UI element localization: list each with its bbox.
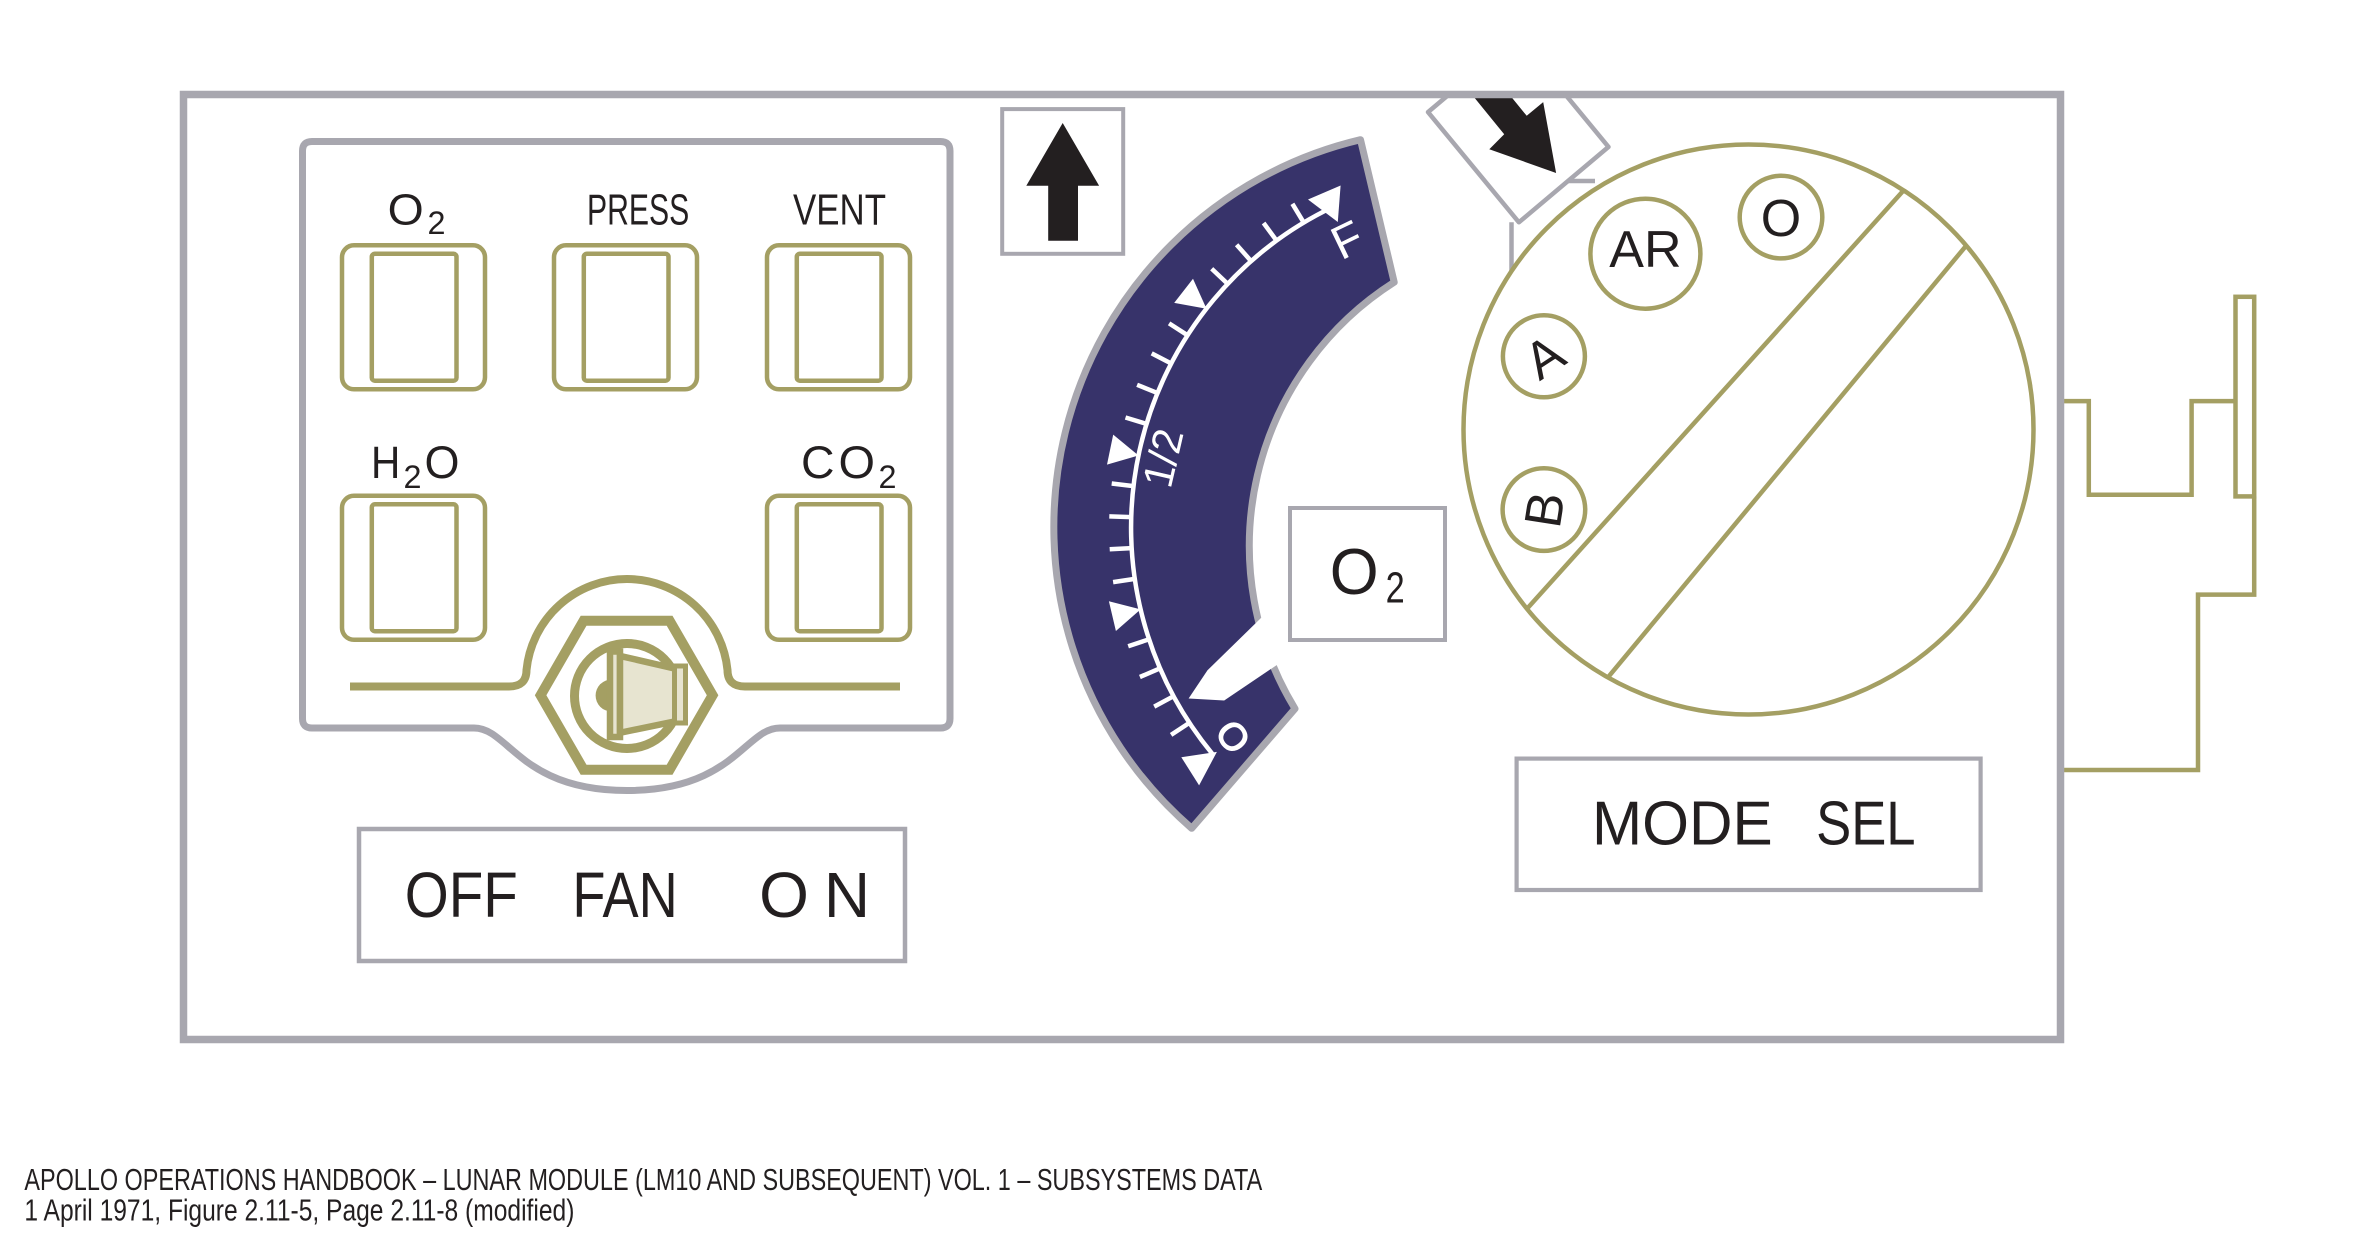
svg-text:2: 2 [1386,564,1405,613]
svg-text:N: N [824,859,870,931]
svg-text:C: C [801,437,835,488]
svg-text:MODE: MODE [1592,789,1773,858]
svg-text:FAN: FAN [572,859,677,931]
svg-text:O: O [1761,190,1801,248]
svg-text:2: 2 [404,459,422,495]
svg-text:PRESS: PRESS [587,186,689,235]
svg-text:O: O [1330,535,1379,608]
svg-text:OFF: OFF [405,859,518,931]
svg-text:O: O [839,437,876,488]
svg-text:H: H [371,437,400,488]
svg-text:O: O [759,859,809,931]
svg-text:AR: AR [1609,221,1681,279]
svg-text:O: O [425,437,460,488]
svg-text:SEL: SEL [1816,789,1916,858]
svg-text:2: 2 [428,205,446,241]
svg-text:1 April 1971, Figure 2.11-5, P: 1 April 1971, Figure 2.11-5, Page 2.11-8… [24,1193,574,1228]
svg-text:O: O [388,186,424,235]
svg-text:VENT: VENT [793,186,886,235]
svg-text:2: 2 [879,459,897,495]
